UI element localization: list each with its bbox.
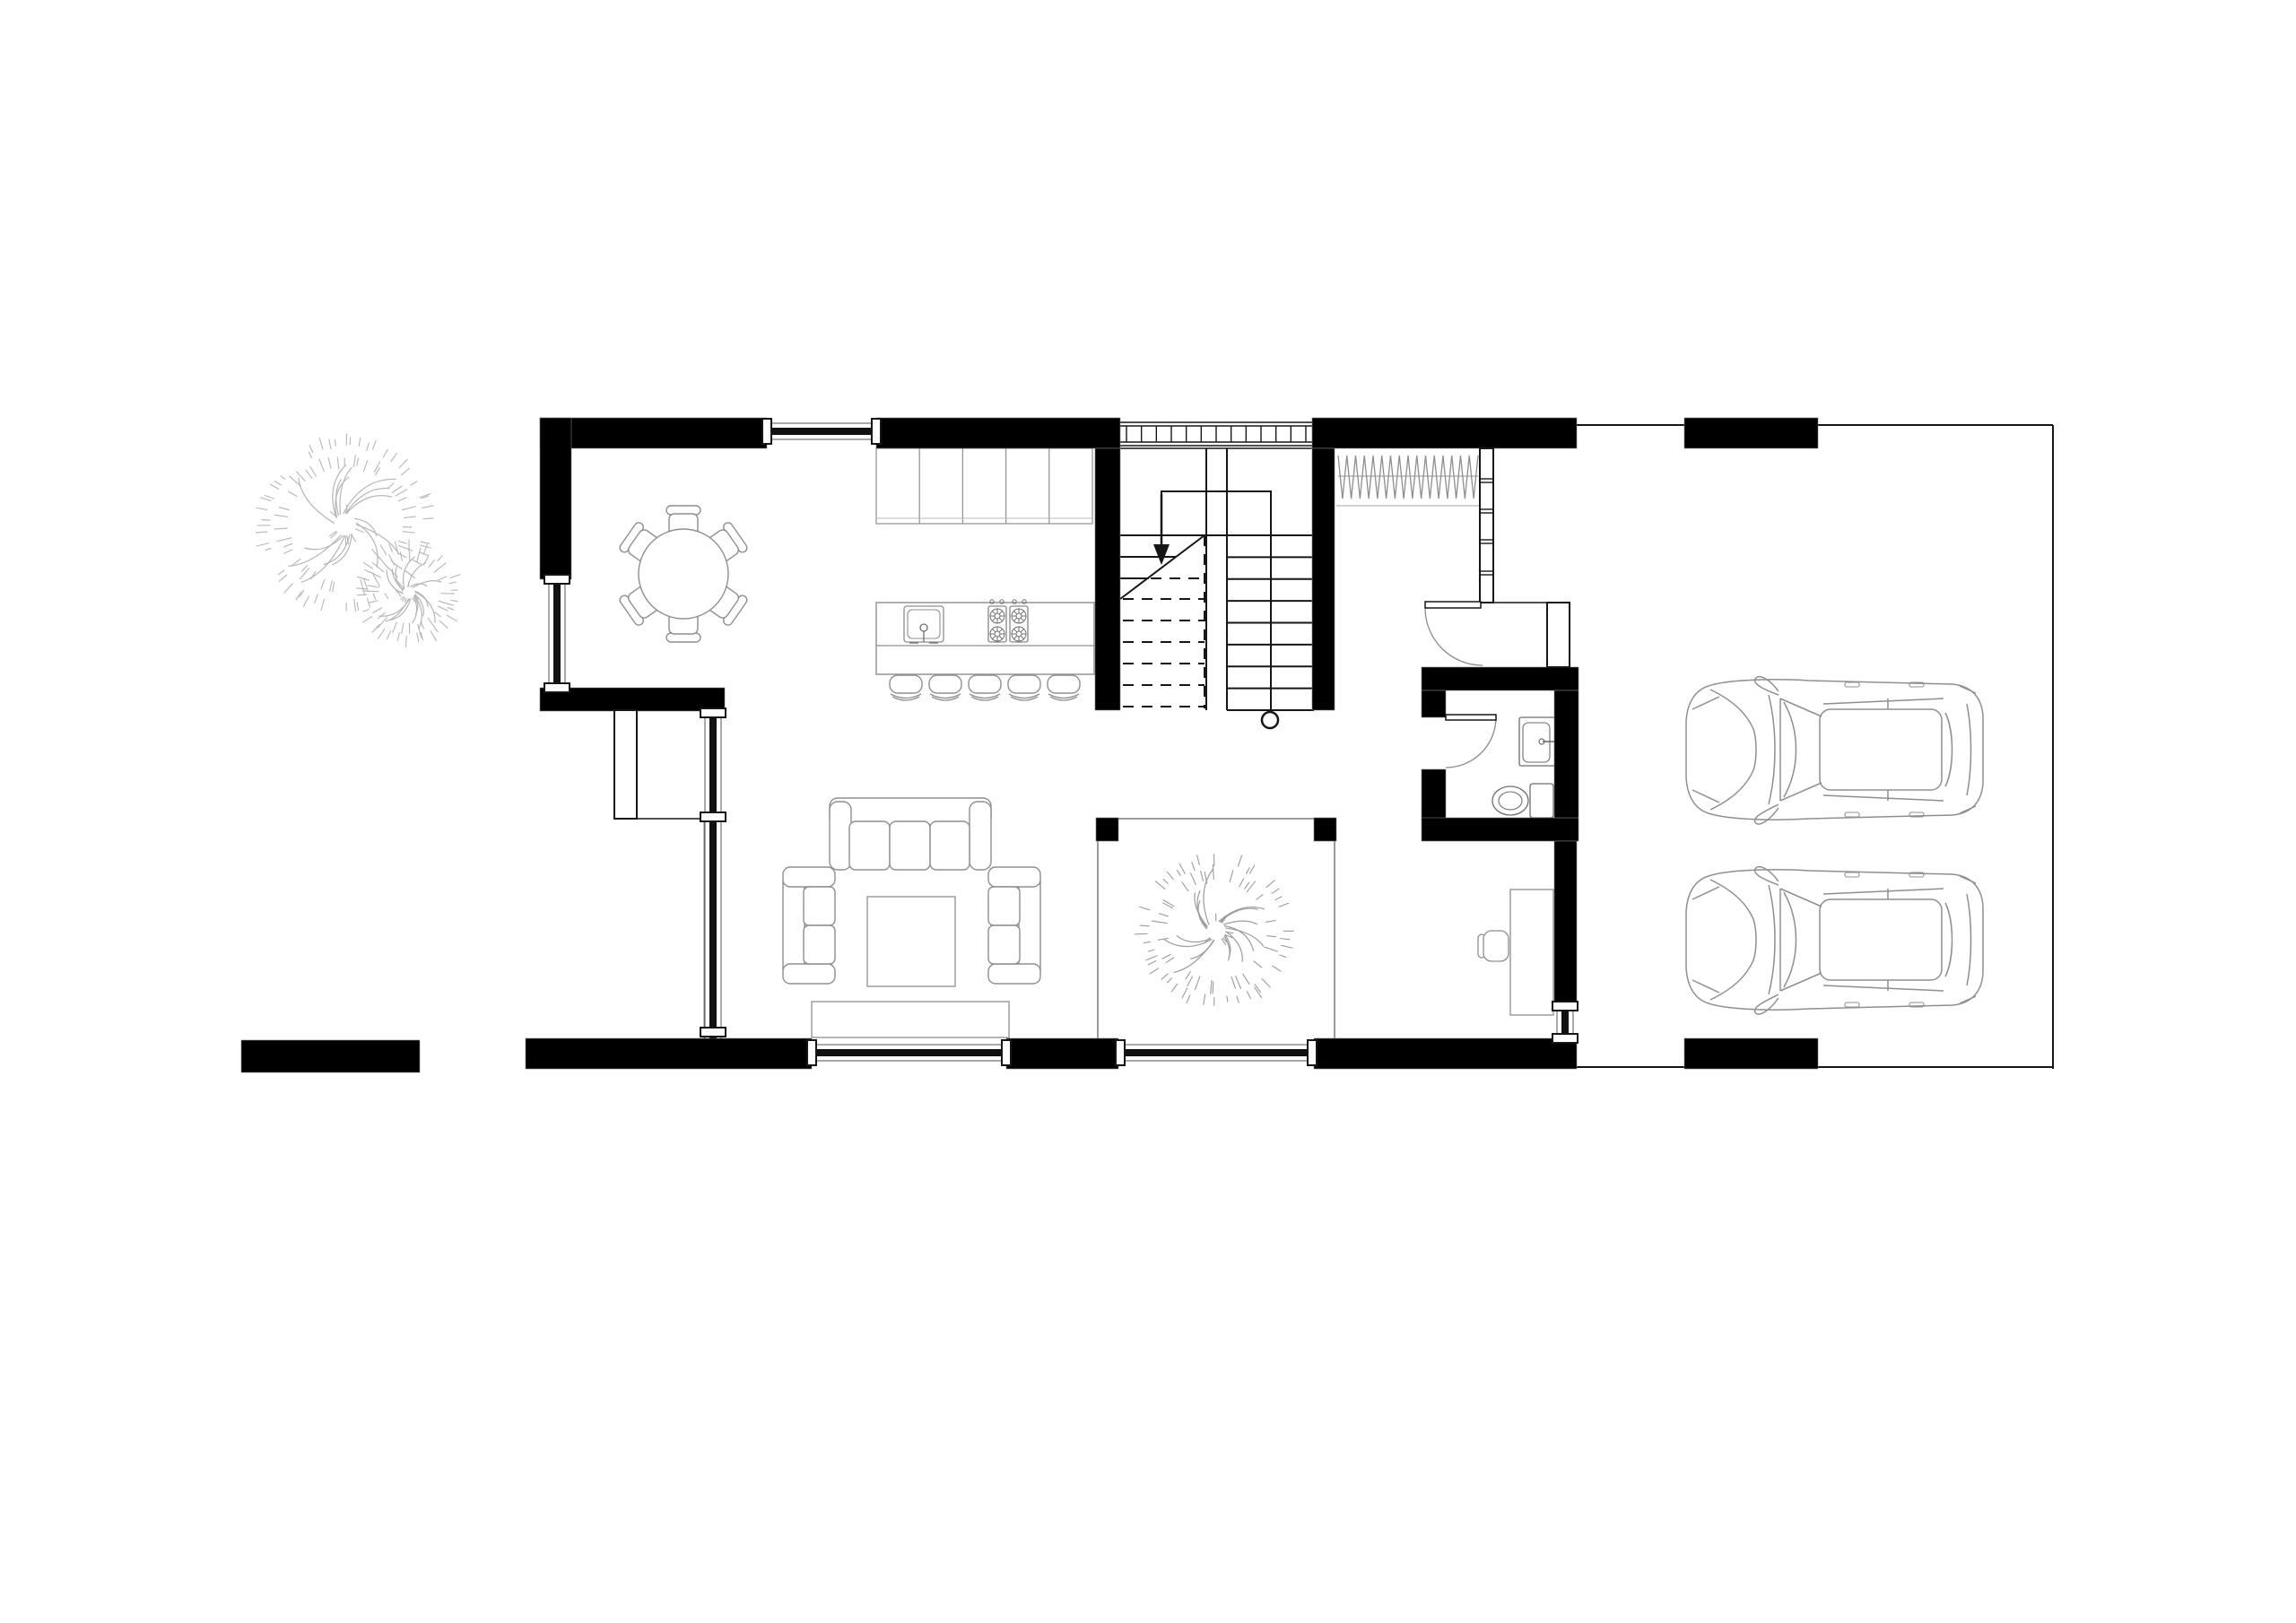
- desk-chair: [1483, 931, 1509, 961]
- loveseat-arm: [988, 867, 1040, 887]
- garage-south-wall: [1684, 1038, 1818, 1069]
- stool-seat: [1008, 675, 1040, 693]
- tv-console: [812, 1002, 1009, 1037]
- window-glass: [709, 710, 717, 1038]
- toilet-bowl: [1492, 786, 1528, 815]
- window-cap: [762, 419, 771, 444]
- loveseat-back: [1019, 874, 1040, 976]
- loveseat-cushion: [804, 887, 835, 925]
- tree-foliage-dash: [405, 636, 406, 647]
- window-glass: [812, 1049, 1006, 1056]
- closet-bifold-door: [1480, 448, 1493, 603]
- window-cap: [807, 1040, 816, 1065]
- north-wall-c: [1312, 418, 1577, 448]
- window-cap: [1308, 1040, 1317, 1065]
- tree-center-dash: [398, 592, 404, 593]
- loveseat-back: [783, 874, 804, 976]
- entry-west-wall: [1312, 448, 1335, 710]
- north-wall-b: [876, 418, 1120, 448]
- window-glass: [767, 428, 876, 435]
- dining-table: [639, 529, 728, 619]
- east-wall: [1554, 841, 1577, 1006]
- loveseat-cushion: [804, 925, 835, 964]
- window-cap: [700, 812, 726, 821]
- stool-seat: [929, 675, 961, 693]
- loveseat-arm: [988, 964, 1040, 984]
- south-wall-a: [526, 1038, 812, 1069]
- bath-sink-bowl: [1523, 723, 1550, 762]
- floor-plan-page: [0, 0, 2296, 1623]
- window-cap: [1116, 1040, 1125, 1065]
- stool-seat: [890, 675, 922, 693]
- window-cap: [544, 575, 570, 584]
- south-wall-c: [1314, 1038, 1577, 1069]
- stair-newel-post: [1262, 712, 1278, 728]
- floor-plan-drawing: [0, 0, 2296, 1623]
- courtyard-post-west: [1096, 818, 1118, 841]
- stool-seat: [969, 675, 1001, 693]
- vestibule-wall-piece: [1547, 603, 1570, 667]
- tree-foliage-dash: [1135, 933, 1148, 934]
- tree-foliage-dash: [261, 520, 270, 521]
- bath-east-wall: [1554, 690, 1578, 818]
- tree-foliage-dash: [350, 437, 351, 445]
- sofa-arm: [970, 802, 991, 870]
- bath-west-wall-upper: [1422, 690, 1446, 717]
- loveseat-cushion: [988, 887, 1020, 925]
- window-cap: [544, 683, 570, 692]
- sofa-arm: [830, 802, 851, 870]
- door-leaf: [1425, 602, 1481, 608]
- loveseat-right: [988, 867, 1040, 984]
- door-leaf: [1446, 715, 1496, 720]
- sofa-cushion: [849, 821, 890, 870]
- bath-west-wall-lower: [1422, 769, 1446, 820]
- loveseat-left: [783, 867, 835, 984]
- north-wall-a: [540, 418, 767, 448]
- bath-north-wall: [1422, 667, 1578, 690]
- tree-foliage-dash: [1140, 925, 1150, 926]
- south-wall-b: [1006, 1038, 1118, 1069]
- tree-foliage-dash: [362, 591, 378, 592]
- west-wall-upper: [540, 418, 571, 579]
- window-cap: [1002, 1040, 1011, 1065]
- courtyard-post-east: [1314, 818, 1336, 841]
- stool-seat: [1048, 675, 1080, 693]
- toilet-tank: [1530, 784, 1553, 818]
- tree-foliage-dash: [1213, 982, 1213, 994]
- window-cap: [1552, 1034, 1578, 1043]
- window-glass: [1120, 1049, 1312, 1056]
- bath-south-wall: [1422, 818, 1578, 841]
- bifold-frame: [1480, 448, 1493, 603]
- window-cap: [872, 419, 881, 444]
- loveseat-arm: [783, 867, 835, 887]
- loveseat-arm: [783, 964, 835, 984]
- porch-pier: [614, 710, 637, 819]
- window-glass: [553, 579, 561, 688]
- window-cap: [1552, 1002, 1578, 1011]
- coffee-table: [867, 897, 955, 986]
- window-cap: [700, 1028, 726, 1037]
- desk: [1510, 890, 1553, 1015]
- window-cap: [700, 708, 726, 717]
- sofa-cushion: [930, 821, 970, 870]
- tree-foliage-dash: [357, 595, 367, 595]
- patio-fence-wall: [241, 1040, 420, 1072]
- loveseat-cushion: [988, 925, 1020, 964]
- garage-north-wall: [1684, 418, 1818, 448]
- stair-west-wall: [1095, 448, 1120, 710]
- paper-background: [0, 0, 2296, 1623]
- upper-cabinets: [876, 448, 1092, 524]
- sofa-cushion: [890, 821, 930, 870]
